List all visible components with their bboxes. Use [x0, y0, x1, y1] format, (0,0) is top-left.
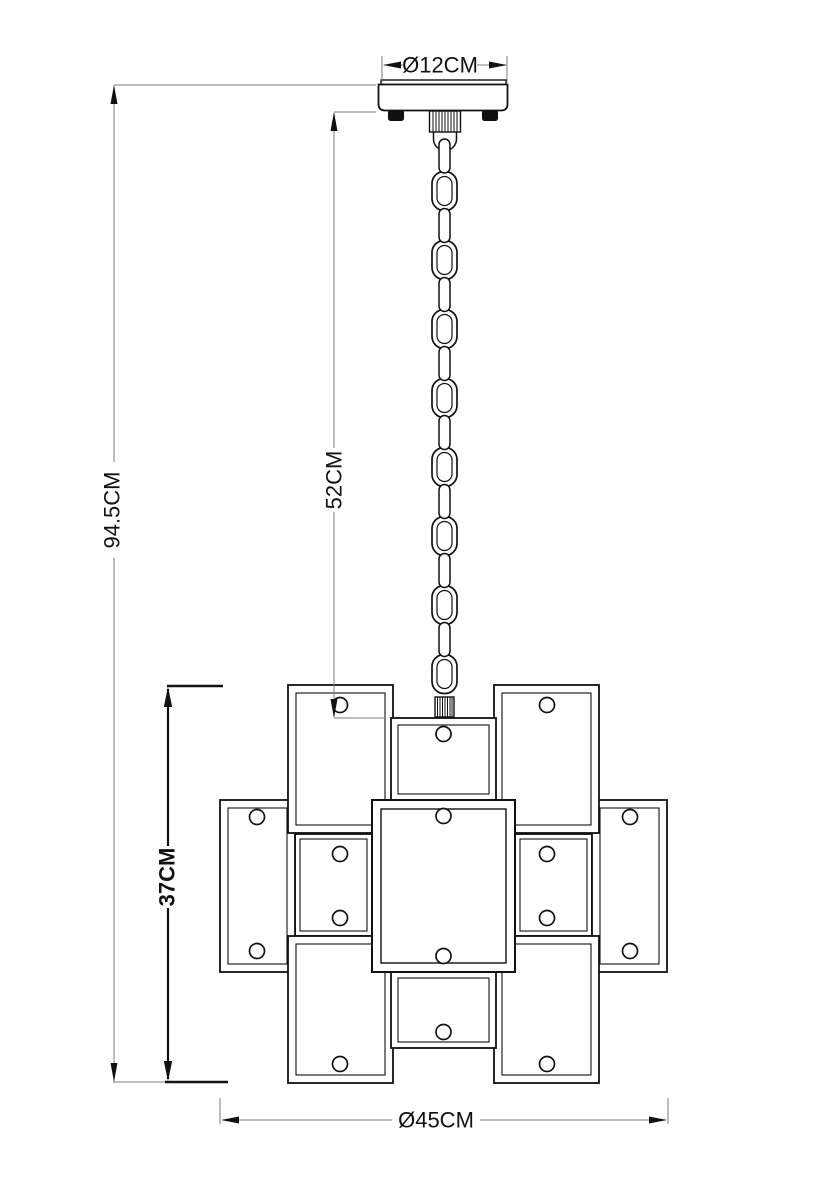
dim-canopy-diameter: Ø12CM — [382, 53, 507, 83]
body-diameter-label: Ø45CM — [398, 1108, 474, 1133]
dim-chain-length: 52CM — [322, 112, 387, 718]
hanging-chain — [432, 139, 457, 694]
body-height-label: 37CM — [155, 848, 180, 907]
canopy-foot-right — [482, 110, 498, 121]
dim-body-diameter: Ø45CM — [220, 1098, 668, 1133]
diagram-canvas: Ø12CM 94.5CM 52CM 37CM Ø45CM — [0, 0, 840, 1200]
canopy-foot-left — [388, 110, 404, 121]
canopy-diameter-label: Ø12CM — [402, 53, 478, 78]
dim-body-height: 37CM — [155, 686, 229, 1082]
chain-length-label: 52CM — [322, 451, 347, 510]
chandelier-body — [220, 685, 667, 1083]
panel-center — [372, 800, 515, 972]
chain-bottom-ferrule — [435, 697, 454, 717]
total-height-label: 94.5CM — [100, 471, 125, 548]
lamp-dimension-diagram: Ø12CM 94.5CM 52CM 37CM Ø45CM — [0, 0, 840, 1200]
